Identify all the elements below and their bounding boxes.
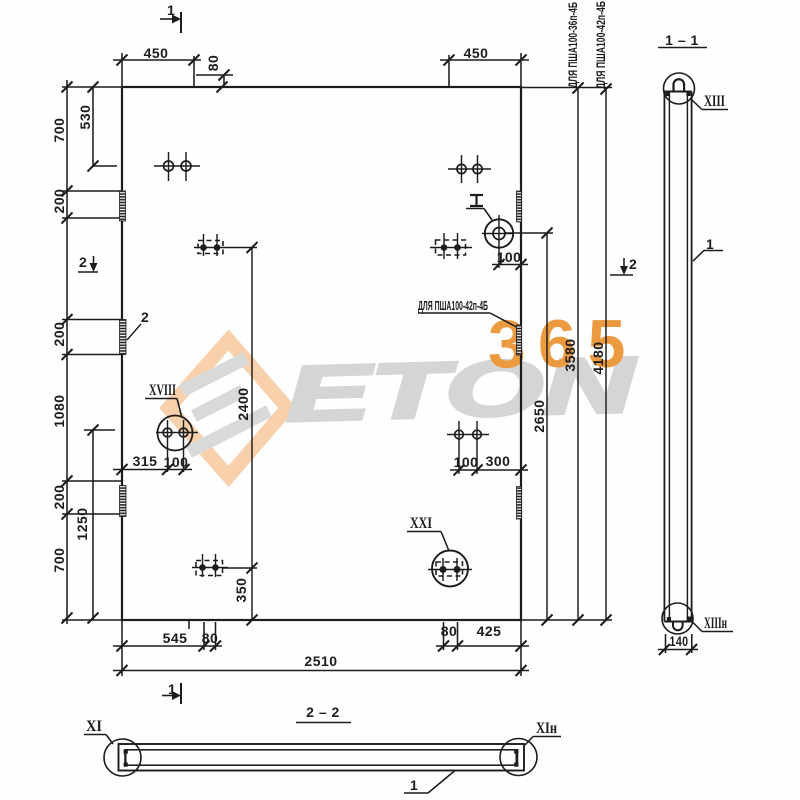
svg-text:100: 100: [497, 249, 522, 265]
svg-text:ДЛЯ ПША100-36п-4Б: ДЛЯ ПША100-36п-4Б: [566, 2, 580, 88]
svg-text:530: 530: [77, 105, 93, 130]
svg-text:200: 200: [51, 485, 67, 510]
svg-text:140: 140: [670, 633, 689, 649]
svg-text:2 – 2: 2 – 2: [306, 704, 340, 720]
svg-text:2650: 2650: [531, 399, 547, 432]
svg-text:80: 80: [441, 623, 458, 639]
svg-text:450: 450: [464, 45, 489, 61]
svg-text:1250: 1250: [74, 507, 90, 540]
svg-text:315: 315: [133, 453, 158, 469]
svg-text:200: 200: [51, 322, 67, 347]
svg-text:XI: XI: [86, 718, 102, 735]
svg-text:200: 200: [51, 189, 67, 214]
svg-text:700: 700: [51, 548, 67, 573]
svg-text:2510: 2510: [304, 653, 337, 669]
svg-text:2: 2: [629, 256, 637, 272]
svg-text:1 – 1: 1 – 1: [665, 32, 699, 48]
svg-text:1: 1: [706, 236, 714, 252]
svg-text:1: 1: [410, 777, 418, 793]
svg-text:1: 1: [168, 681, 176, 697]
svg-text:100: 100: [454, 454, 479, 470]
svg-text:300: 300: [486, 453, 511, 469]
svg-text:350: 350: [233, 578, 249, 603]
svg-text:700: 700: [51, 118, 67, 143]
svg-text:1080: 1080: [51, 394, 67, 427]
svg-text:3580: 3580: [562, 338, 578, 371]
svg-text:2: 2: [79, 254, 87, 270]
svg-text:425: 425: [477, 623, 502, 639]
svg-text:XXI: XXI: [410, 515, 432, 532]
svg-text:XIIIн: XIIIн: [704, 615, 727, 632]
svg-text:2400: 2400: [235, 387, 251, 420]
svg-text:80: 80: [205, 55, 221, 72]
svg-text:80: 80: [202, 630, 219, 646]
svg-text:1: 1: [167, 2, 175, 18]
svg-text:2: 2: [141, 309, 149, 325]
svg-text:ДЛЯ ПША100-42п-4Б: ДЛЯ ПША100-42п-4Б: [418, 299, 488, 313]
svg-text:545: 545: [163, 630, 188, 646]
svg-text:100: 100: [164, 454, 189, 470]
svg-text:XVIII: XVIII: [149, 382, 176, 399]
svg-text:4180: 4180: [590, 341, 606, 374]
svg-text:450: 450: [144, 45, 169, 61]
svg-text:XIII: XIII: [704, 93, 725, 110]
svg-text:XIн: XIн: [536, 720, 557, 737]
svg-text:ДЛЯ ПША100-42п-4Б: ДЛЯ ПША100-42п-4Б: [594, 1, 608, 89]
